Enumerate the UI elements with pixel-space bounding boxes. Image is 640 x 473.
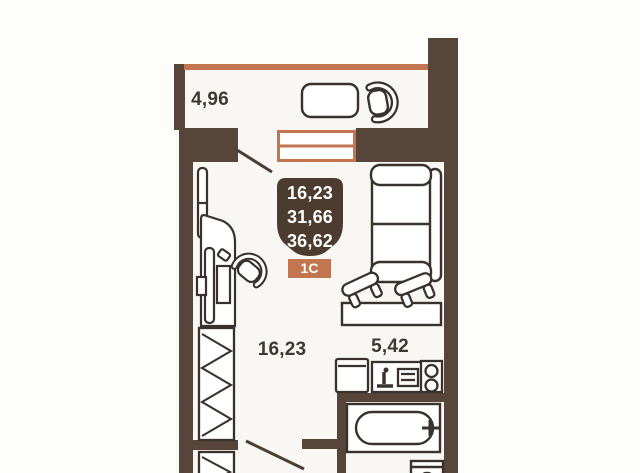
kitchen-area-label: 5,42 (366, 336, 414, 358)
kitchen-counter (336, 359, 442, 392)
area-value-2: 31,66 (277, 205, 343, 229)
area-value-1: 16,23 (277, 181, 343, 205)
window (278, 132, 355, 161)
bathtub-icon (347, 404, 440, 452)
area-badge-values: 16,23 31,66 36,62 (277, 181, 343, 253)
hall-cabinet-icon (199, 452, 234, 473)
hall-bathroom-wall (337, 393, 346, 473)
right-wall (444, 160, 458, 473)
balcony-table-icon (302, 84, 358, 117)
top-wall-right (356, 128, 458, 162)
washing-machine-icon (411, 461, 443, 473)
room-area-label: 16,23 (252, 339, 312, 361)
entry-wall-left (193, 440, 238, 450)
entry-wall-right (302, 439, 337, 449)
kitchen-bathroom-wall (337, 393, 458, 402)
balcony-rail (184, 64, 428, 70)
balcony-area-label: 4,96 (184, 89, 236, 111)
area-value-3: 36,62 (277, 229, 343, 253)
sofa-icon (371, 165, 441, 282)
flat-type-label: 1С (288, 259, 331, 278)
left-wall (179, 128, 193, 473)
desk-drawer (197, 277, 206, 295)
dish-rack-icon (398, 369, 418, 386)
desk-monitor (217, 266, 230, 303)
wardrobe-icon (199, 328, 234, 440)
floorplan-image[interactable]: 4,96 16,23 5,42 16,23 31,66 36,62 1С (0, 0, 640, 473)
fridge-icon (336, 359, 368, 392)
top-right-wall-block (428, 38, 458, 130)
sofa-armrest-top (371, 165, 431, 185)
